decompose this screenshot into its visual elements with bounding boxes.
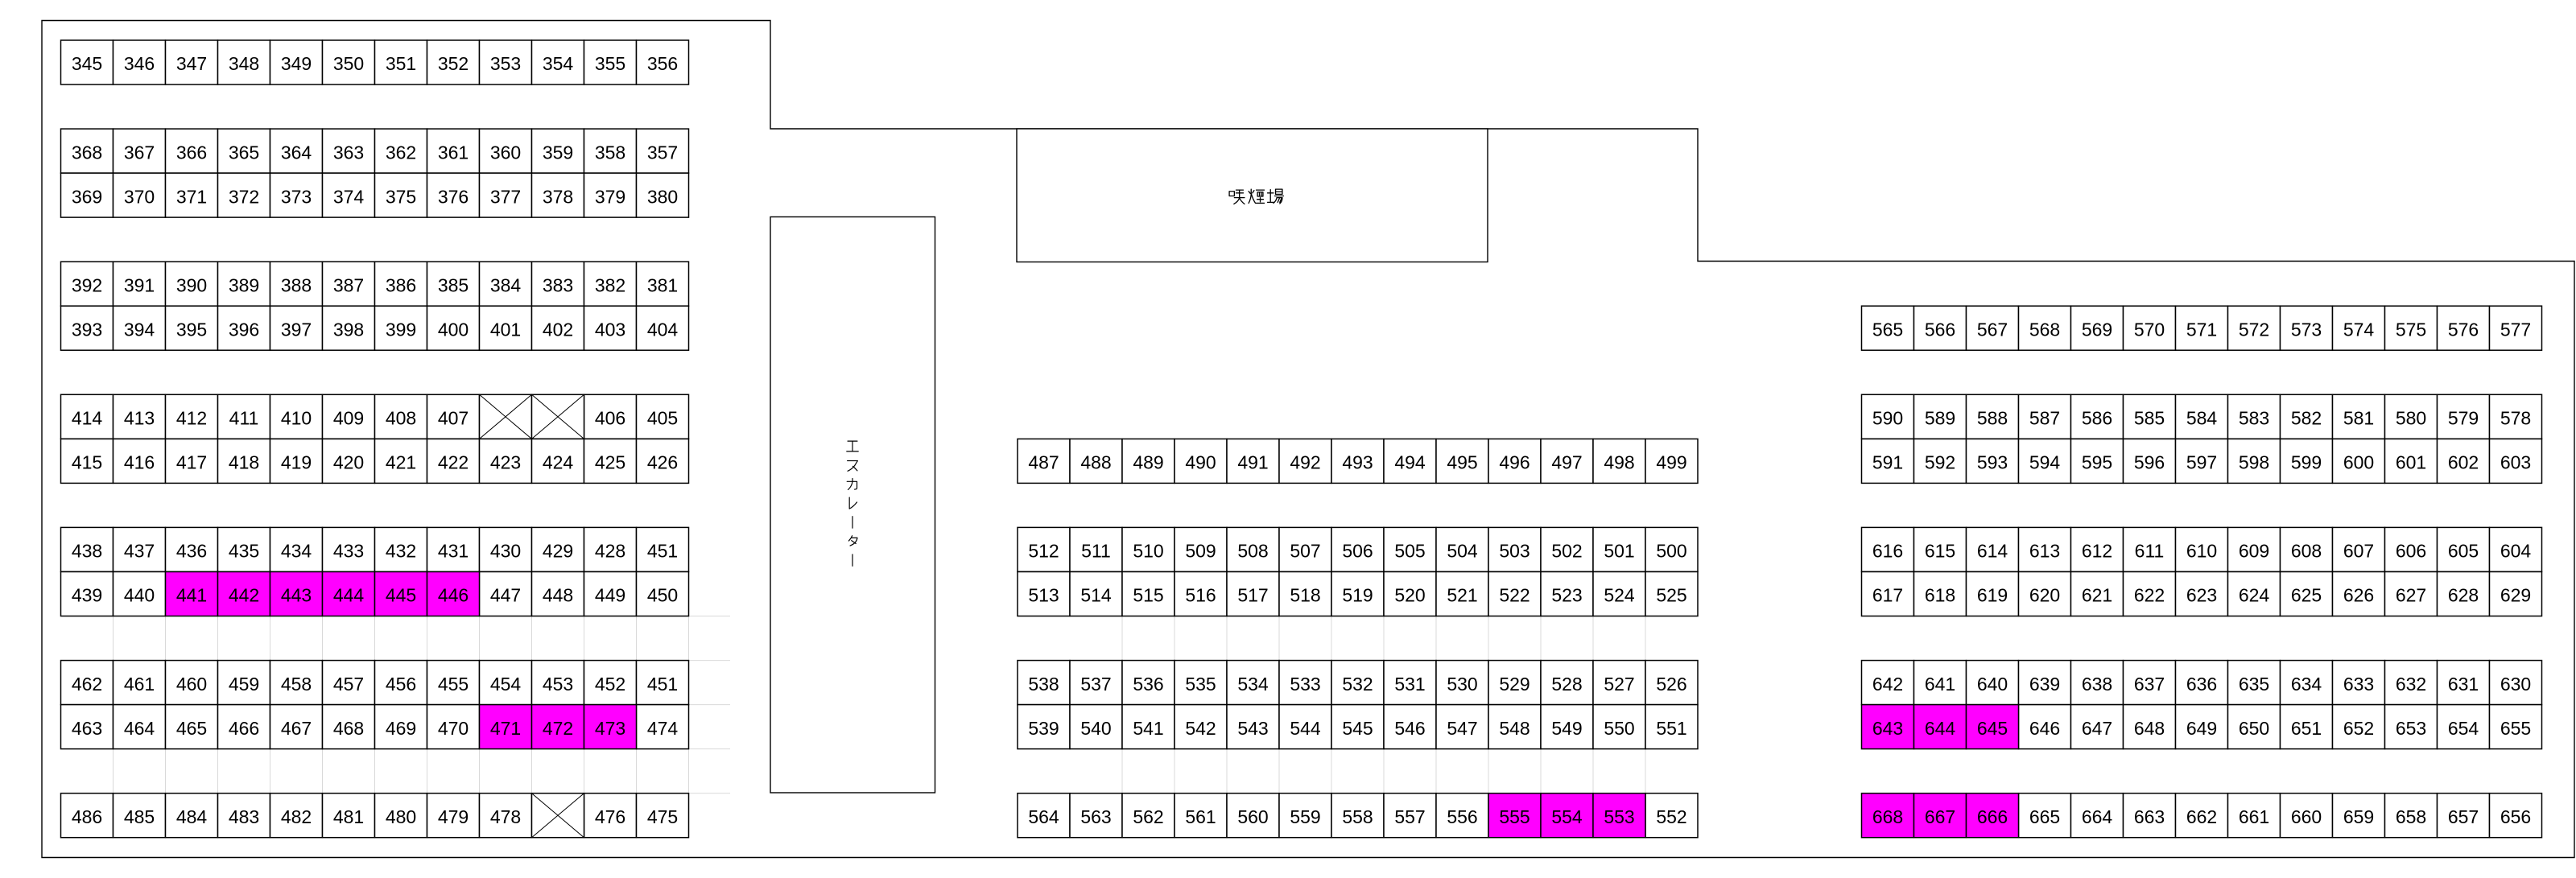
svg-text:457: 457	[333, 674, 364, 695]
svg-text:403: 403	[595, 319, 625, 340]
svg-text:456: 456	[386, 674, 416, 695]
svg-text:496: 496	[1499, 452, 1529, 473]
svg-text:534: 534	[1237, 674, 1269, 695]
svg-text:414: 414	[72, 408, 103, 429]
svg-text:580: 580	[2396, 408, 2426, 429]
svg-text:432: 432	[386, 541, 416, 562]
svg-text:633: 633	[2343, 674, 2374, 695]
svg-text:400: 400	[438, 319, 469, 340]
svg-text:444: 444	[333, 585, 365, 606]
svg-text:407: 407	[438, 408, 469, 429]
svg-text:527: 527	[1604, 674, 1634, 695]
svg-text:360: 360	[490, 142, 521, 163]
svg-text:393: 393	[72, 319, 102, 340]
svg-text:466: 466	[229, 718, 259, 739]
svg-text:635: 635	[2239, 674, 2269, 695]
svg-text:614: 614	[1977, 541, 2008, 562]
svg-text:525: 525	[1656, 585, 1686, 606]
svg-text:497: 497	[1551, 452, 1582, 473]
svg-text:350: 350	[333, 53, 364, 74]
svg-text:469: 469	[386, 718, 416, 739]
svg-text:397: 397	[281, 319, 312, 340]
svg-text:641: 641	[1925, 674, 1955, 695]
svg-text:537: 537	[1080, 674, 1111, 695]
svg-text:517: 517	[1237, 585, 1268, 606]
svg-text:668: 668	[1872, 806, 1903, 827]
svg-text:478: 478	[490, 806, 521, 827]
svg-text:535: 535	[1185, 674, 1216, 695]
svg-text:660: 660	[2291, 806, 2322, 827]
svg-text:623: 623	[2186, 585, 2217, 606]
svg-text:667: 667	[1925, 806, 1955, 827]
svg-text:355: 355	[595, 53, 625, 74]
svg-text:499: 499	[1656, 452, 1686, 473]
svg-text:581: 581	[2343, 408, 2374, 429]
svg-text:615: 615	[1925, 541, 1955, 562]
svg-text:590: 590	[1872, 408, 1903, 429]
svg-text:647: 647	[2082, 718, 2112, 739]
svg-text:620: 620	[2029, 585, 2060, 606]
svg-text:578: 578	[2500, 408, 2531, 429]
svg-text:515: 515	[1133, 585, 1163, 606]
svg-text:513: 513	[1028, 585, 1059, 606]
svg-text:431: 431	[438, 541, 469, 562]
svg-text:419: 419	[281, 452, 312, 473]
svg-text:476: 476	[595, 806, 625, 827]
svg-text:619: 619	[1977, 585, 2008, 606]
svg-text:573: 573	[2291, 319, 2322, 340]
svg-text:524: 524	[1604, 585, 1635, 606]
svg-text:629: 629	[2500, 585, 2531, 606]
svg-text:514: 514	[1080, 585, 1112, 606]
svg-text:429: 429	[543, 541, 573, 562]
svg-text:367: 367	[124, 142, 155, 163]
svg-text:611: 611	[2135, 541, 2165, 562]
svg-text:451: 451	[647, 674, 678, 695]
svg-text:468: 468	[333, 718, 364, 739]
svg-text:653: 653	[2396, 718, 2426, 739]
svg-text:658: 658	[2396, 806, 2426, 827]
svg-text:601: 601	[2396, 452, 2426, 473]
svg-text:418: 418	[229, 452, 259, 473]
svg-text:348: 348	[229, 53, 259, 74]
svg-text:531: 531	[1394, 674, 1425, 695]
svg-text:412: 412	[176, 408, 207, 429]
svg-text:437: 437	[124, 541, 155, 562]
svg-text:472: 472	[543, 718, 573, 739]
svg-text:574: 574	[2343, 319, 2375, 340]
svg-text:503: 503	[1499, 541, 1529, 562]
svg-text:656: 656	[2500, 806, 2531, 827]
svg-text:399: 399	[386, 319, 416, 340]
svg-text:426: 426	[647, 452, 678, 473]
svg-text:644: 644	[1925, 718, 1956, 739]
svg-text:613: 613	[2029, 541, 2060, 562]
svg-text:654: 654	[2448, 718, 2479, 739]
svg-text:645: 645	[1977, 718, 2008, 739]
svg-text:516: 516	[1185, 585, 1216, 606]
svg-text:353: 353	[490, 53, 521, 74]
svg-text:373: 373	[281, 186, 312, 207]
svg-text:361: 361	[438, 142, 469, 163]
svg-text:640: 640	[1977, 674, 2008, 695]
svg-text:500: 500	[1656, 541, 1686, 562]
svg-text:536: 536	[1133, 674, 1163, 695]
svg-text:411: 411	[229, 408, 259, 429]
svg-text:357: 357	[647, 142, 678, 163]
svg-text:586: 586	[2082, 408, 2112, 429]
svg-text:602: 602	[2448, 452, 2479, 473]
svg-text:624: 624	[2239, 585, 2270, 606]
svg-text:394: 394	[124, 319, 155, 340]
svg-text:628: 628	[2448, 585, 2479, 606]
svg-text:554: 554	[1551, 806, 1583, 827]
svg-text:481: 481	[333, 806, 364, 827]
svg-text:398: 398	[333, 319, 364, 340]
svg-text:576: 576	[2448, 319, 2479, 340]
svg-text:415: 415	[72, 452, 102, 473]
svg-text:570: 570	[2134, 319, 2165, 340]
svg-text:596: 596	[2134, 452, 2165, 473]
svg-text:665: 665	[2029, 806, 2060, 827]
svg-text:523: 523	[1551, 585, 1582, 606]
svg-text:550: 550	[1604, 718, 1634, 739]
svg-text:634: 634	[2291, 674, 2322, 695]
svg-text:352: 352	[438, 53, 469, 74]
svg-text:396: 396	[229, 319, 259, 340]
svg-text:622: 622	[2134, 585, 2165, 606]
svg-text:664: 664	[2082, 806, 2113, 827]
svg-text:413: 413	[124, 408, 155, 429]
svg-text:366: 366	[176, 142, 207, 163]
svg-text:545: 545	[1342, 718, 1373, 739]
svg-text:370: 370	[124, 186, 155, 207]
svg-text:446: 446	[438, 585, 469, 606]
svg-text:448: 448	[543, 585, 573, 606]
svg-text:492: 492	[1290, 452, 1320, 473]
svg-text:405: 405	[647, 408, 678, 429]
svg-text:605: 605	[2448, 541, 2479, 562]
svg-text:575: 575	[2396, 319, 2426, 340]
svg-text:646: 646	[2029, 718, 2060, 739]
svg-text:591: 591	[1872, 452, 1903, 473]
svg-text:422: 422	[438, 452, 469, 473]
svg-text:505: 505	[1394, 541, 1425, 562]
svg-text:547: 547	[1447, 718, 1477, 739]
svg-text:454: 454	[490, 674, 522, 695]
svg-text:420: 420	[333, 452, 364, 473]
svg-text:609: 609	[2239, 541, 2269, 562]
svg-text:556: 556	[1447, 806, 1477, 827]
svg-text:493: 493	[1342, 452, 1373, 473]
svg-text:443: 443	[281, 585, 312, 606]
svg-text:382: 382	[595, 274, 625, 295]
svg-text:571: 571	[2186, 319, 2217, 340]
svg-text:593: 593	[1977, 452, 2008, 473]
svg-text:377: 377	[490, 186, 521, 207]
svg-text:528: 528	[1551, 674, 1582, 695]
svg-text:461: 461	[124, 674, 155, 695]
svg-text:424: 424	[543, 452, 574, 473]
svg-text:410: 410	[281, 408, 312, 429]
svg-text:636: 636	[2186, 674, 2217, 695]
svg-text:530: 530	[1447, 674, 1477, 695]
svg-text:648: 648	[2134, 718, 2165, 739]
svg-text:510: 510	[1133, 541, 1163, 562]
svg-text:532: 532	[1342, 674, 1373, 695]
svg-text:501: 501	[1604, 541, 1634, 562]
svg-text:460: 460	[176, 674, 207, 695]
svg-text:587: 587	[2029, 408, 2060, 429]
svg-text:402: 402	[543, 319, 573, 340]
svg-text:364: 364	[281, 142, 312, 163]
svg-text:661: 661	[2239, 806, 2269, 827]
svg-text:378: 378	[543, 186, 573, 207]
svg-text:566: 566	[1925, 319, 1955, 340]
svg-text:616: 616	[1872, 541, 1903, 562]
svg-text:548: 548	[1499, 718, 1529, 739]
svg-text:577: 577	[2500, 319, 2531, 340]
svg-text:555: 555	[1499, 806, 1529, 827]
svg-text:374: 374	[333, 186, 365, 207]
svg-text:541: 541	[1133, 718, 1163, 739]
svg-text:662: 662	[2186, 806, 2217, 827]
svg-text:408: 408	[386, 408, 416, 429]
svg-text:485: 485	[124, 806, 155, 827]
svg-text:506: 506	[1342, 541, 1373, 562]
svg-text:363: 363	[333, 142, 364, 163]
svg-text:630: 630	[2500, 674, 2531, 695]
svg-text:588: 588	[1977, 408, 2008, 429]
svg-text:495: 495	[1447, 452, 1477, 473]
svg-text:544: 544	[1290, 718, 1321, 739]
svg-text:449: 449	[595, 585, 625, 606]
svg-text:552: 552	[1656, 806, 1686, 827]
svg-text:597: 597	[2186, 452, 2217, 473]
svg-text:508: 508	[1237, 541, 1268, 562]
svg-text:626: 626	[2343, 585, 2374, 606]
svg-text:434: 434	[281, 541, 312, 562]
svg-text:406: 406	[595, 408, 625, 429]
svg-text:600: 600	[2343, 452, 2374, 473]
svg-text:387: 387	[333, 274, 364, 295]
svg-text:441: 441	[176, 585, 207, 606]
svg-text:649: 649	[2186, 718, 2217, 739]
svg-text:368: 368	[72, 142, 102, 163]
svg-text:558: 558	[1342, 806, 1373, 827]
svg-text:359: 359	[543, 142, 573, 163]
svg-text:553: 553	[1604, 806, 1634, 827]
svg-text:569: 569	[2082, 319, 2112, 340]
svg-text:345: 345	[72, 53, 102, 74]
svg-text:463: 463	[72, 718, 102, 739]
svg-text:395: 395	[176, 319, 207, 340]
svg-text:421: 421	[386, 452, 416, 473]
svg-text:584: 584	[2186, 408, 2218, 429]
svg-text:652: 652	[2343, 718, 2374, 739]
svg-text:540: 540	[1080, 718, 1111, 739]
svg-text:404: 404	[647, 319, 679, 340]
svg-text:608: 608	[2291, 541, 2322, 562]
svg-text:447: 447	[490, 585, 521, 606]
svg-text:475: 475	[647, 806, 678, 827]
svg-text:639: 639	[2029, 674, 2060, 695]
svg-text:346: 346	[124, 53, 155, 74]
svg-text:627: 627	[2396, 585, 2426, 606]
svg-text:659: 659	[2343, 806, 2374, 827]
svg-text:380: 380	[647, 186, 678, 207]
svg-text:502: 502	[1551, 541, 1582, 562]
svg-text:347: 347	[176, 53, 207, 74]
svg-text:519: 519	[1342, 585, 1373, 606]
svg-text:561: 561	[1185, 806, 1216, 827]
svg-text:507: 507	[1290, 541, 1320, 562]
svg-text:465: 465	[176, 718, 207, 739]
svg-text:486: 486	[72, 806, 102, 827]
svg-text:560: 560	[1237, 806, 1268, 827]
svg-text:383: 383	[543, 274, 573, 295]
svg-text:458: 458	[281, 674, 312, 695]
svg-text:451: 451	[647, 541, 678, 562]
svg-text:504: 504	[1447, 541, 1478, 562]
svg-text:490: 490	[1185, 452, 1216, 473]
svg-text:445: 445	[386, 585, 416, 606]
svg-text:386: 386	[386, 274, 416, 295]
svg-text:559: 559	[1290, 806, 1320, 827]
svg-text:351: 351	[386, 53, 416, 74]
svg-text:436: 436	[176, 541, 207, 562]
svg-text:557: 557	[1394, 806, 1425, 827]
svg-text:487: 487	[1028, 452, 1059, 473]
svg-text:643: 643	[1872, 718, 1903, 739]
svg-text:384: 384	[490, 274, 522, 295]
svg-text:462: 462	[72, 674, 102, 695]
svg-text:467: 467	[281, 718, 312, 739]
svg-text:612: 612	[2082, 541, 2112, 562]
svg-text:498: 498	[1604, 452, 1634, 473]
svg-text:533: 533	[1290, 674, 1320, 695]
svg-text:543: 543	[1237, 718, 1268, 739]
svg-text:491: 491	[1237, 452, 1268, 473]
svg-text:375: 375	[386, 186, 416, 207]
svg-text:604: 604	[2500, 541, 2532, 562]
svg-text:455: 455	[438, 674, 469, 695]
svg-text:473: 473	[595, 718, 625, 739]
svg-text:650: 650	[2239, 718, 2269, 739]
svg-text:483: 483	[229, 806, 259, 827]
svg-text:594: 594	[2029, 452, 2061, 473]
svg-text:651: 651	[2291, 718, 2322, 739]
svg-text:565: 565	[1872, 319, 1903, 340]
svg-text:358: 358	[595, 142, 625, 163]
svg-text:388: 388	[281, 274, 312, 295]
svg-text:471: 471	[490, 718, 521, 739]
svg-text:538: 538	[1028, 674, 1059, 695]
svg-text:442: 442	[229, 585, 259, 606]
svg-text:433: 433	[333, 541, 364, 562]
svg-text:479: 479	[438, 806, 469, 827]
svg-text:522: 522	[1499, 585, 1529, 606]
svg-text:520: 520	[1394, 585, 1425, 606]
svg-text:488: 488	[1080, 452, 1111, 473]
svg-text:459: 459	[229, 674, 259, 695]
svg-text:381: 381	[647, 274, 678, 295]
svg-text:564: 564	[1028, 806, 1059, 827]
svg-text:563: 563	[1080, 806, 1111, 827]
svg-text:440: 440	[124, 585, 155, 606]
svg-text:474: 474	[647, 718, 679, 739]
svg-text:371: 371	[176, 186, 207, 207]
svg-text:592: 592	[1925, 452, 1955, 473]
svg-text:417: 417	[176, 452, 207, 473]
svg-text:512: 512	[1028, 541, 1059, 562]
svg-text:542: 542	[1185, 718, 1216, 739]
svg-text:511: 511	[1081, 541, 1111, 562]
svg-text:562: 562	[1133, 806, 1163, 827]
svg-text:509: 509	[1185, 541, 1216, 562]
svg-text:391: 391	[124, 274, 155, 295]
svg-text:365: 365	[229, 142, 259, 163]
svg-text:494: 494	[1394, 452, 1426, 473]
svg-text:435: 435	[229, 541, 259, 562]
svg-text:438: 438	[72, 541, 102, 562]
svg-text:389: 389	[229, 274, 259, 295]
svg-text:489: 489	[1133, 452, 1163, 473]
svg-text:621: 621	[2082, 585, 2112, 606]
svg-text:607: 607	[2343, 541, 2374, 562]
svg-text:362: 362	[386, 142, 416, 163]
svg-text:482: 482	[281, 806, 312, 827]
svg-text:385: 385	[438, 274, 469, 295]
svg-text:450: 450	[647, 585, 678, 606]
svg-text:625: 625	[2291, 585, 2322, 606]
svg-text:618: 618	[1925, 585, 1955, 606]
svg-text:617: 617	[1872, 585, 1903, 606]
svg-text:637: 637	[2134, 674, 2165, 695]
svg-text:428: 428	[595, 541, 625, 562]
svg-text:598: 598	[2239, 452, 2269, 473]
svg-text:631: 631	[2448, 674, 2479, 695]
svg-text:439: 439	[72, 585, 102, 606]
svg-text:572: 572	[2239, 319, 2269, 340]
svg-text:568: 568	[2029, 319, 2060, 340]
svg-text:632: 632	[2396, 674, 2426, 695]
svg-text:354: 354	[543, 53, 574, 74]
svg-text:423: 423	[490, 452, 521, 473]
svg-text:379: 379	[595, 186, 625, 207]
svg-text:480: 480	[386, 806, 416, 827]
svg-text:464: 464	[124, 718, 155, 739]
svg-text:425: 425	[595, 452, 625, 473]
svg-text:666: 666	[1977, 806, 2008, 827]
svg-text:551: 551	[1656, 718, 1686, 739]
svg-text:401: 401	[490, 319, 521, 340]
svg-text:606: 606	[2396, 541, 2426, 562]
svg-text:663: 663	[2134, 806, 2165, 827]
svg-text:390: 390	[176, 274, 207, 295]
svg-text:484: 484	[176, 806, 208, 827]
svg-text:452: 452	[595, 674, 625, 695]
svg-text:638: 638	[2082, 674, 2112, 695]
svg-text:610: 610	[2186, 541, 2217, 562]
svg-text:470: 470	[438, 718, 469, 739]
svg-text:595: 595	[2082, 452, 2112, 473]
svg-text:642: 642	[1872, 674, 1903, 695]
svg-text:603: 603	[2500, 452, 2531, 473]
svg-text:416: 416	[124, 452, 155, 473]
svg-text:349: 349	[281, 53, 312, 74]
svg-text:549: 549	[1551, 718, 1582, 739]
